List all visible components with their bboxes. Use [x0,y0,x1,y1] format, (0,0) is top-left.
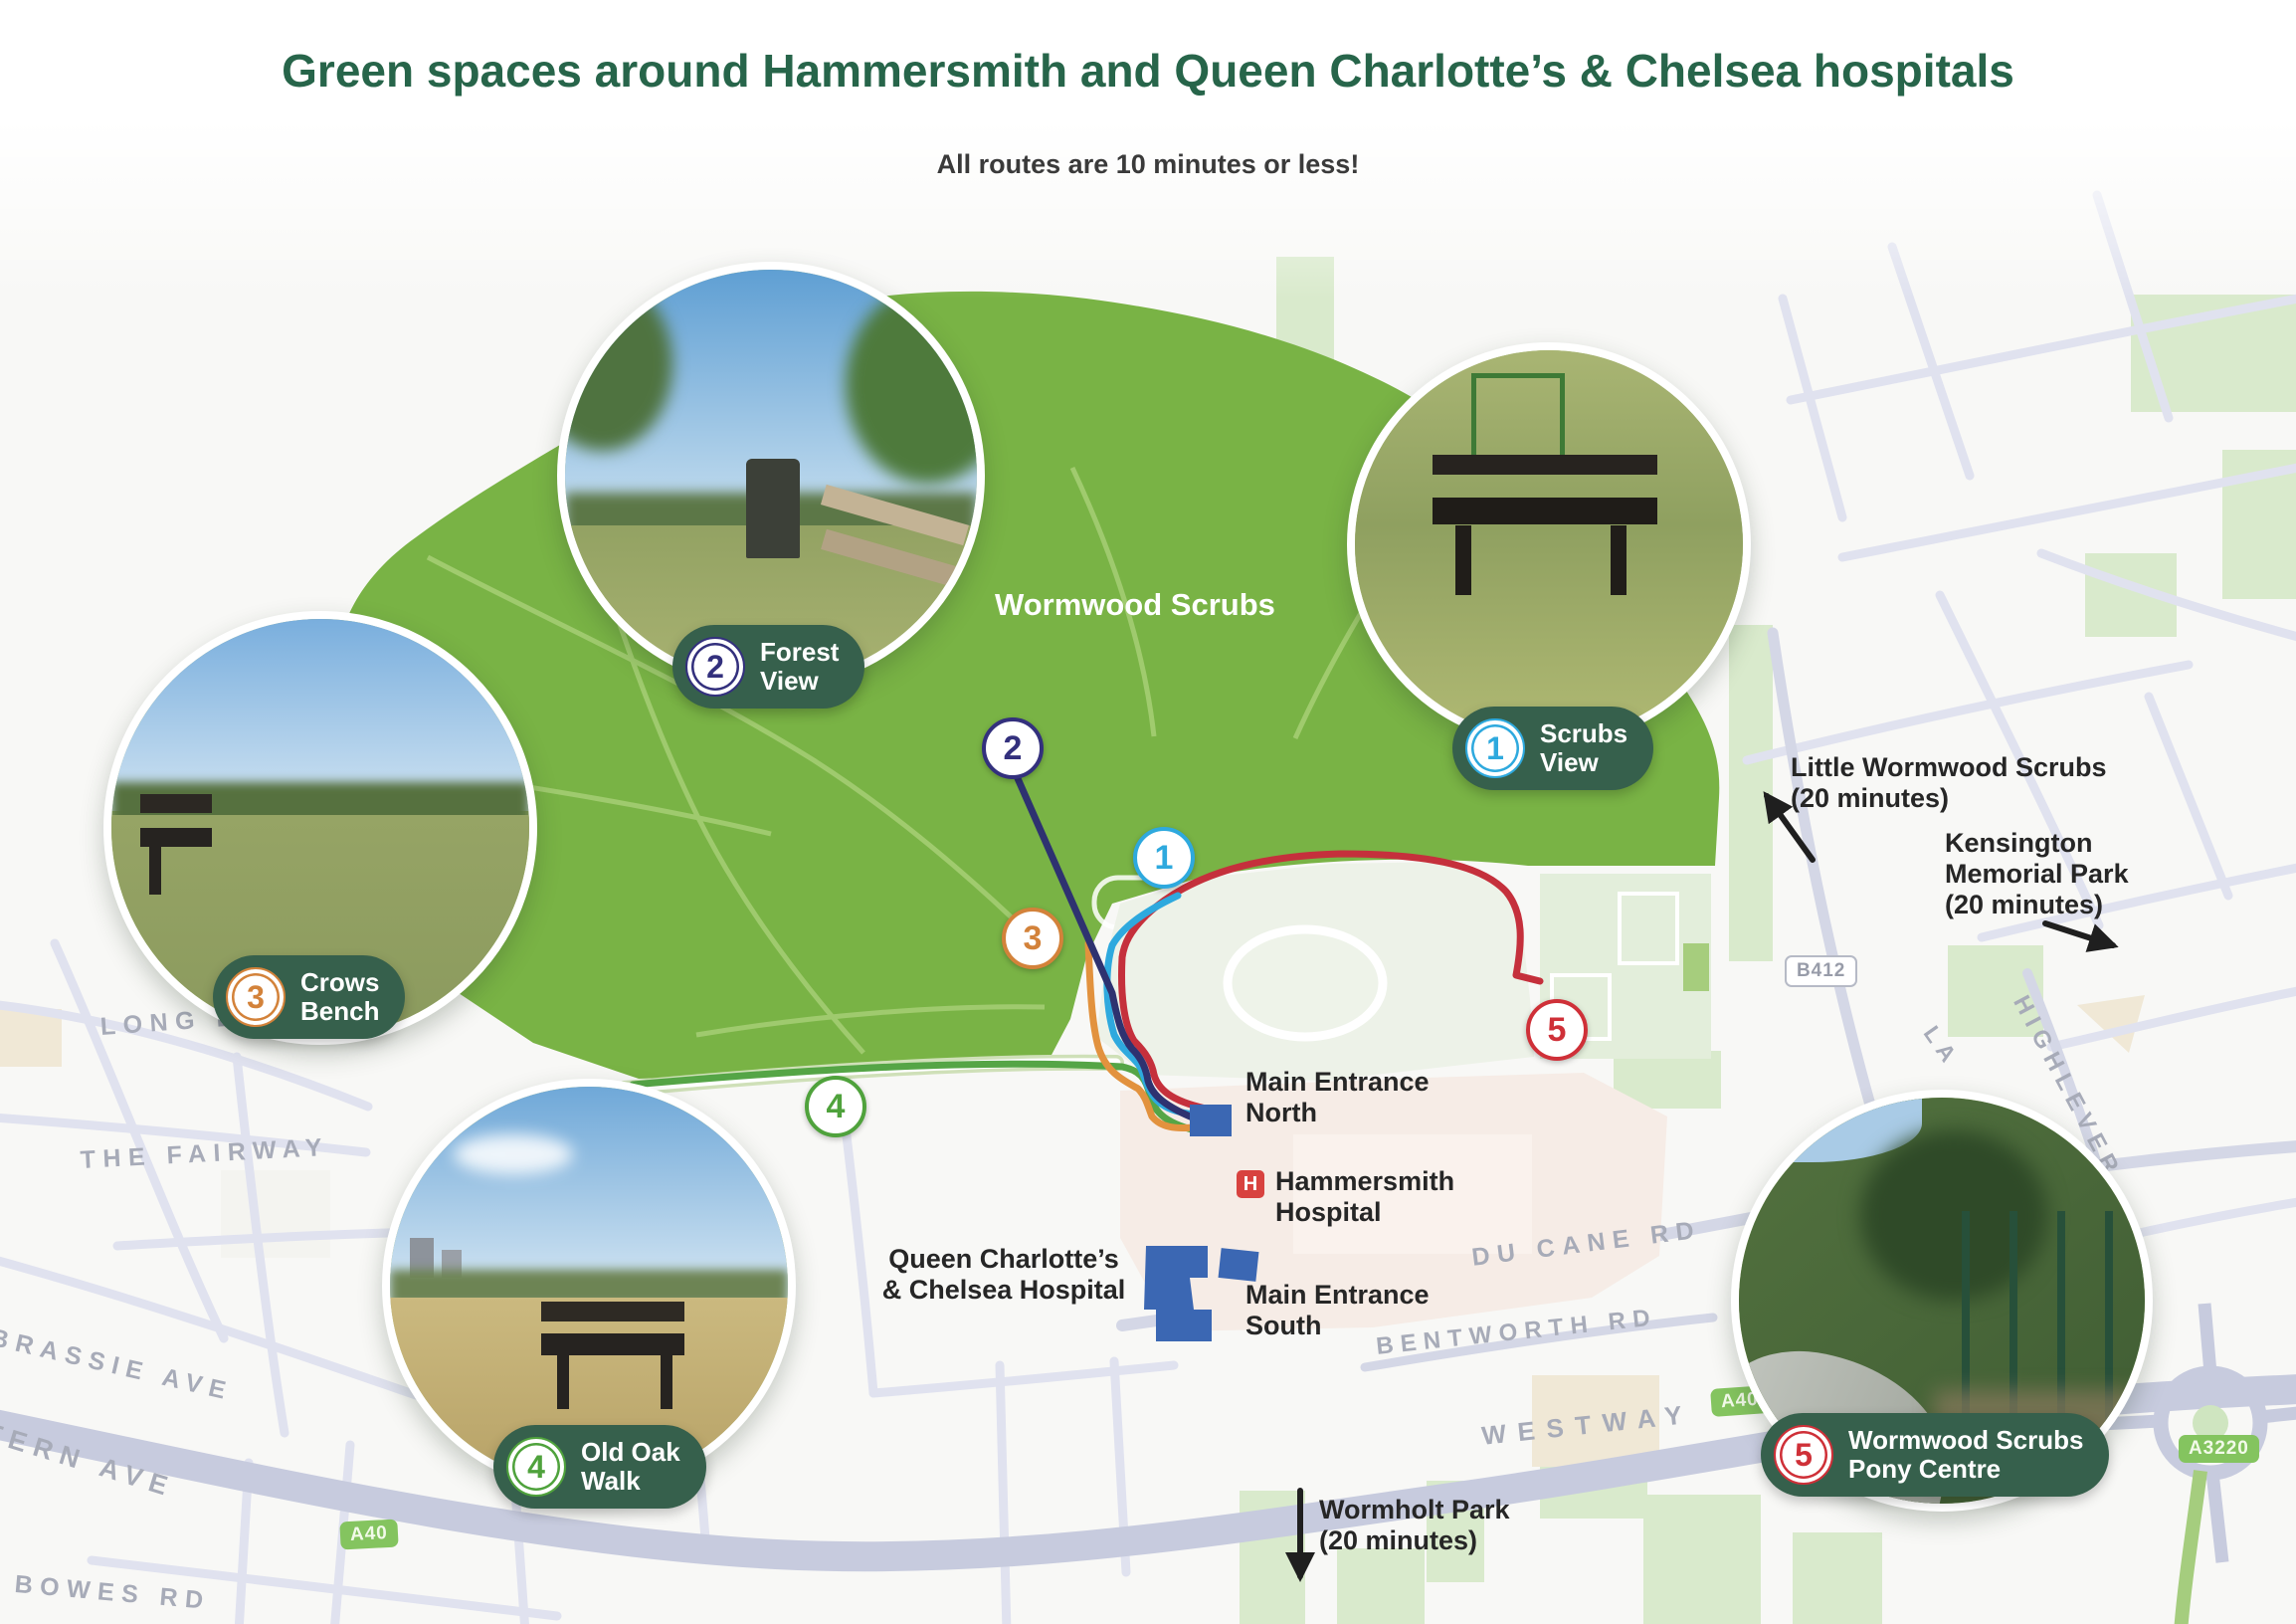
legend-number-4: 4 [506,1437,566,1497]
road-badge-a3220: A3220 [2179,1435,2259,1463]
photo-scrubs-view [1347,342,1751,746]
legend-pill-old-oak-walk: 4 Old Oak Walk [493,1425,706,1509]
legend-label-forest-view: Forest View [760,638,839,697]
photo-scrubs-bench-leg-right [1611,525,1626,595]
map-marker-5-number: 5 [1548,1011,1567,1050]
photo-forest-bin [746,459,800,557]
map-marker-3: 3 [1002,908,1063,969]
legend-number-3-text: 3 [247,979,265,1016]
legend-number-2-text: 2 [706,649,724,686]
photo-scrubs-bench-back [1433,455,1657,475]
page-subtitle: All routes are 10 minutes or less! [0,149,2296,180]
map-marker-2-number: 2 [1004,729,1023,768]
photo-scrubs-bench-seat [1433,498,1657,524]
legend-pill-crows-bench: 3 Crows Bench [213,955,405,1039]
legend-number-5: 5 [1774,1425,1833,1485]
map-marker-4-number: 4 [827,1088,846,1126]
label-hammersmith-hospital: Hammersmith Hospital [1275,1166,1454,1228]
map-marker-1: 1 [1133,827,1195,889]
park-label: Wormwood Scrubs [995,587,1275,623]
page-title: Green spaces around Hammersmith and Quee… [0,44,2296,98]
legend-number-1-text: 1 [1486,730,1504,767]
photo-scrubs-goalpost [1471,373,1565,459]
legend-number-4-text: 4 [527,1449,545,1486]
photo-scrubs-bench-leg-left [1455,525,1471,595]
legend-number-3: 3 [226,967,286,1027]
legend-number-2: 2 [685,637,745,697]
legend-pill-pony-centre: 5 Wormwood Scrubs Pony Centre [1761,1413,2109,1497]
map-marker-2: 2 [982,717,1044,779]
legend-label-scrubs-view: Scrubs View [1540,719,1627,778]
legend-label-crows-bench: Crows Bench [300,968,379,1027]
photo-oldoak-bench-seat [541,1333,684,1355]
map-marker-1-number: 1 [1155,839,1174,878]
label-main-entrance-north: Main Entrance North [1245,1067,1430,1128]
infographic-map: Green spaces around Hammersmith and Quee… [0,0,2296,1624]
hospital-symbol-icon: H [1237,1170,1264,1198]
photo-crows-bench-leg [149,845,162,895]
legend-pill-forest-view: 2 Forest View [672,625,864,709]
map-marker-3-number: 3 [1024,919,1043,958]
legend-label-old-oak-walk: Old Oak Walk [581,1438,680,1497]
label-wormholt-park: Wormholt Park (20 minutes) [1319,1495,1510,1556]
legend-number-5-text: 5 [1795,1437,1813,1474]
label-kensington-memorial-park: Kensington Memorial Park (20 minutes) [1945,828,2144,919]
photo-oldoak-bench-back [541,1302,684,1321]
label-little-wormwood-scrubs: Little Wormwood Scrubs (20 minutes) [1791,752,2107,814]
label-main-entrance-south: Main Entrance South [1245,1280,1430,1341]
legend-label-pony-centre: Wormwood Scrubs Pony Centre [1848,1426,2083,1485]
road-badge-a40-west: A40 [339,1520,398,1550]
legend-pill-scrubs-view: 1 Scrubs View [1452,707,1653,790]
photo-oldoak-bench-leg-left [557,1353,569,1409]
photo-oldoak-cloud [454,1134,573,1174]
legend-number-1: 1 [1465,718,1525,778]
map-marker-5: 5 [1526,999,1588,1061]
label-queen-charlottes-hospital: Queen Charlotte’s & Chelsea Hospital [873,1244,1134,1306]
photo-oldoak-bench-leg-right [661,1353,672,1409]
road-badge-b412: B412 [1785,955,1857,987]
photo-crows-bench-back [140,794,211,813]
map-marker-4: 4 [805,1076,866,1137]
